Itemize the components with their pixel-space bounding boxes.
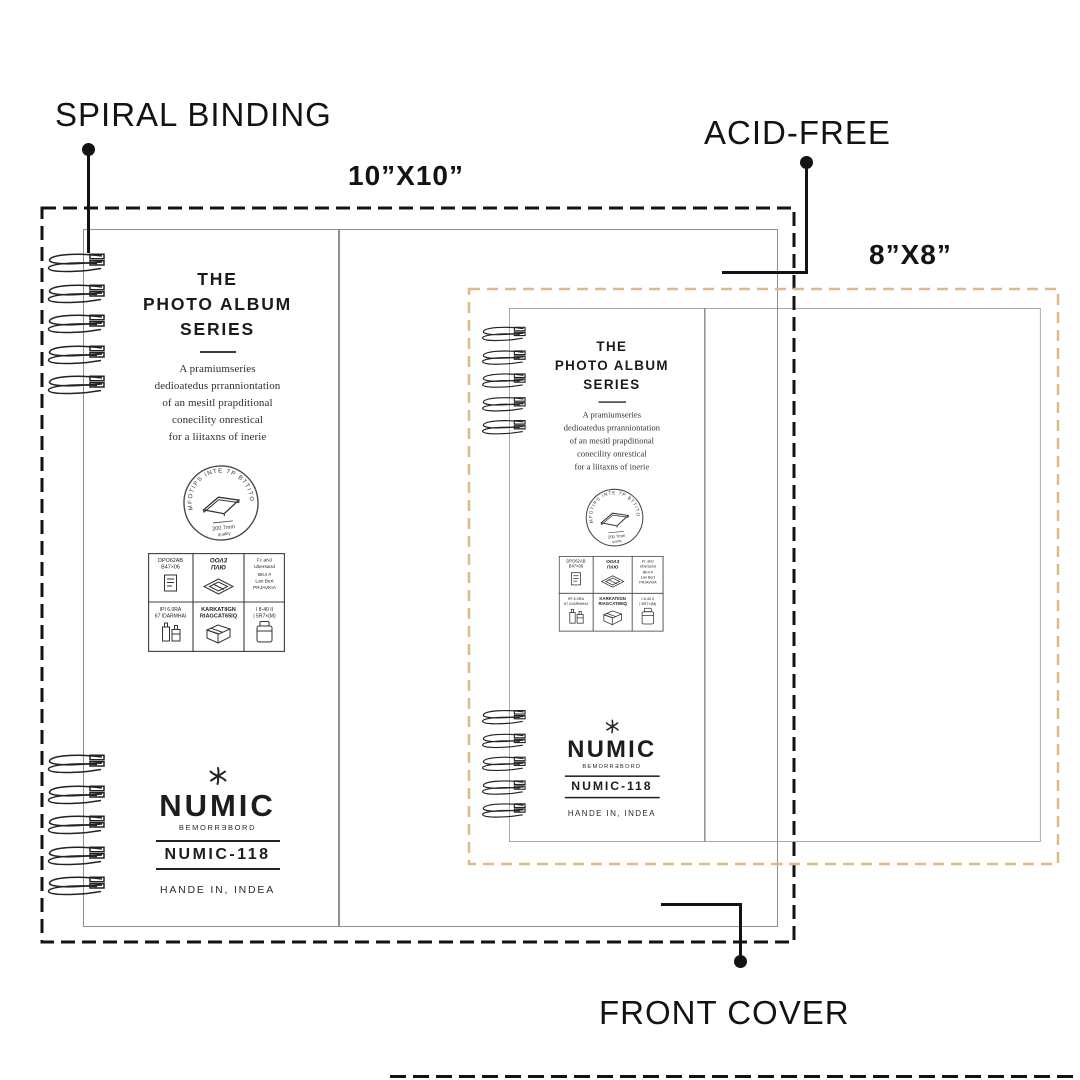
album-book-icon xyxy=(202,495,240,518)
spec-text: I 8-40 II xyxy=(256,607,273,613)
spec-text: B47×06 xyxy=(161,565,180,571)
series-description: A pramiumseries dedioatedus prranniontat… xyxy=(90,361,345,446)
spec-text: PRJAVKIA xyxy=(639,580,657,584)
carton-box-icon xyxy=(207,625,230,643)
spec-text: DPO62AB xyxy=(158,558,183,564)
spec-text: I 8-40 II xyxy=(641,597,654,601)
front-cover-leader-dot xyxy=(734,955,747,968)
spec-text: 67 IDARMHAI xyxy=(564,602,588,606)
series-title: THE PHOTO ALBUM SERIES xyxy=(90,267,345,342)
description-line: A pramiumseries xyxy=(90,361,345,378)
spec-text: IPI 6.0RA xyxy=(568,597,585,601)
spec-grid: DPO62AB B47×06 OOΛ3 ПΛЮ xyxy=(148,553,285,652)
album-book-icon xyxy=(600,512,629,530)
document-icon xyxy=(571,573,580,585)
model-number: NUMIC-118 xyxy=(156,840,280,870)
description-line: A pramiumseries xyxy=(514,409,709,422)
infographic-canvas: THE PHOTO ALBUM SERIES A pramiumseries d… xyxy=(0,0,1080,1080)
spec-text: Ubersand xyxy=(640,564,656,568)
series-title-line: SERIES xyxy=(90,317,345,342)
title-rule xyxy=(200,351,236,353)
spec-text: Fi: aNJ xyxy=(642,559,654,563)
front-cover-label: FRONT COVER xyxy=(599,996,850,1029)
origin-text: HANDE IN, INDEA xyxy=(514,809,709,818)
series-title: THE PHOTO ALBUM SERIES xyxy=(514,337,709,394)
diamond-plate-icon xyxy=(204,579,233,594)
photo-album: THE PHOTO ALBUM SERIES A pramiumseries d… xyxy=(509,308,1041,842)
title-rule xyxy=(598,401,626,402)
description-line: conecility onrestical xyxy=(90,412,345,429)
series-title-line: PHOTO ALBUM xyxy=(90,292,345,317)
spec-text: OOΛ3 xyxy=(210,558,228,565)
origin-text: HANDE IN, INDEA xyxy=(90,884,345,896)
spec-text: OOΛ3 xyxy=(606,559,620,565)
spec-text: | 5R7×(M) xyxy=(639,602,657,606)
description-line: dedioatedus prranniontation xyxy=(90,378,345,395)
brand-block: NUMIC BEMORRƎBORD NUMIC-118 HANDE IN, IN… xyxy=(514,718,709,818)
album-label: THE PHOTO ALBUM SERIES A pramiumseries d… xyxy=(514,308,709,474)
spec-text: RIAGCAT65IQ xyxy=(598,601,627,606)
acid-free-leader-line xyxy=(805,163,808,274)
album-small-scaled: THE PHOTO ALBUM SERIES A pramiumseries d… xyxy=(509,308,1041,842)
size-label-8x8: 8”X8” xyxy=(869,241,952,269)
spec-text: IPI 6.0RA xyxy=(160,607,182,613)
spec-text: Lan Bert xyxy=(255,579,274,585)
description-line: of an mesitl prapditional xyxy=(514,435,709,448)
bottles-icon xyxy=(163,623,181,641)
album-small: THE PHOTO ALBUM SERIES A pramiumseries d… xyxy=(509,308,1080,1006)
asterisk-flower-icon xyxy=(603,718,620,735)
spec-text: BK4 # xyxy=(643,570,654,574)
spec-text: | 5R7×(M) xyxy=(253,614,276,620)
spec-text: ПΛЮ xyxy=(607,564,619,570)
brand-subtitle: BEMORRƎBORD xyxy=(514,762,709,769)
jar-icon xyxy=(642,608,653,624)
spec-text: Lan Bert xyxy=(641,575,655,579)
stamp-caption: quality xyxy=(612,539,623,544)
description-line: for a liitaxns of inerie xyxy=(90,429,345,446)
jar-icon xyxy=(257,622,272,643)
series-title-line: SERIES xyxy=(514,375,709,394)
spec-text: B47×06 xyxy=(569,564,584,569)
spec-text: Ubersand xyxy=(254,564,275,570)
brand-subtitle: BEMORRƎBORD xyxy=(90,823,345,832)
document-icon xyxy=(165,575,177,591)
quality-stamp: MFOTIPS INTE 7P BTTITO 200 7mm quality xyxy=(573,476,657,560)
size-label-10x10: 10”X10” xyxy=(348,162,464,190)
brand-block: NUMIC BEMORRƎBORD NUMIC-118 HANDE IN, IN… xyxy=(90,765,345,896)
spec-grid: DPO62AB B47×06 OOΛ3 ПΛЮ xyxy=(559,556,664,632)
spec-text: ПΛЮ xyxy=(211,565,227,572)
front-cover-leader-elbow xyxy=(661,903,742,906)
description-line: conecility onrestical xyxy=(514,448,709,461)
spiral-binding-leader-line xyxy=(87,150,90,253)
spec-text: KARKATIIGN xyxy=(201,607,236,613)
album-label: THE PHOTO ALBUM SERIES A pramiumseries d… xyxy=(90,229,345,446)
bottles-icon xyxy=(570,609,583,623)
spiral-binding-label: SPIRAL BINDING xyxy=(55,98,332,131)
diamond-plate-icon xyxy=(602,576,624,587)
model-number: NUMIC-118 xyxy=(564,775,659,798)
series-title-line: THE xyxy=(514,337,709,356)
spec-text: Fi: aNJ xyxy=(257,558,273,564)
acid-free-label: ACID-FREE xyxy=(704,116,891,149)
series-title-line: PHOTO ALBUM xyxy=(514,356,709,375)
acid-free-leader-elbow xyxy=(722,271,808,274)
description-line: for a liitaxns of inerie xyxy=(514,461,709,474)
carton-box-icon xyxy=(604,611,622,625)
spec-text: RIAGCAT65IQ xyxy=(200,614,238,620)
stamp-caption: quality xyxy=(218,531,232,537)
brand-name: NUMIC xyxy=(514,737,709,761)
spec-text: PRJAVKIA xyxy=(253,585,277,591)
description-line: dedioatedus prranniontation xyxy=(514,422,709,435)
description-line: of an mesitl prapditional xyxy=(90,395,345,412)
series-description: A pramiumseries dedioatedus prranniontat… xyxy=(514,409,709,474)
front-cover-leader-line xyxy=(739,903,742,958)
spec-text: BK4 # xyxy=(258,572,271,578)
spec-text: 67 IDARMHAI xyxy=(155,614,186,620)
brand-name: NUMIC xyxy=(90,790,345,822)
quality-stamp: MFOTIPS INTE 7P BTTITO 200 7mm quality xyxy=(166,448,276,558)
series-title-line: THE xyxy=(90,267,345,292)
asterisk-flower-icon xyxy=(207,765,229,787)
